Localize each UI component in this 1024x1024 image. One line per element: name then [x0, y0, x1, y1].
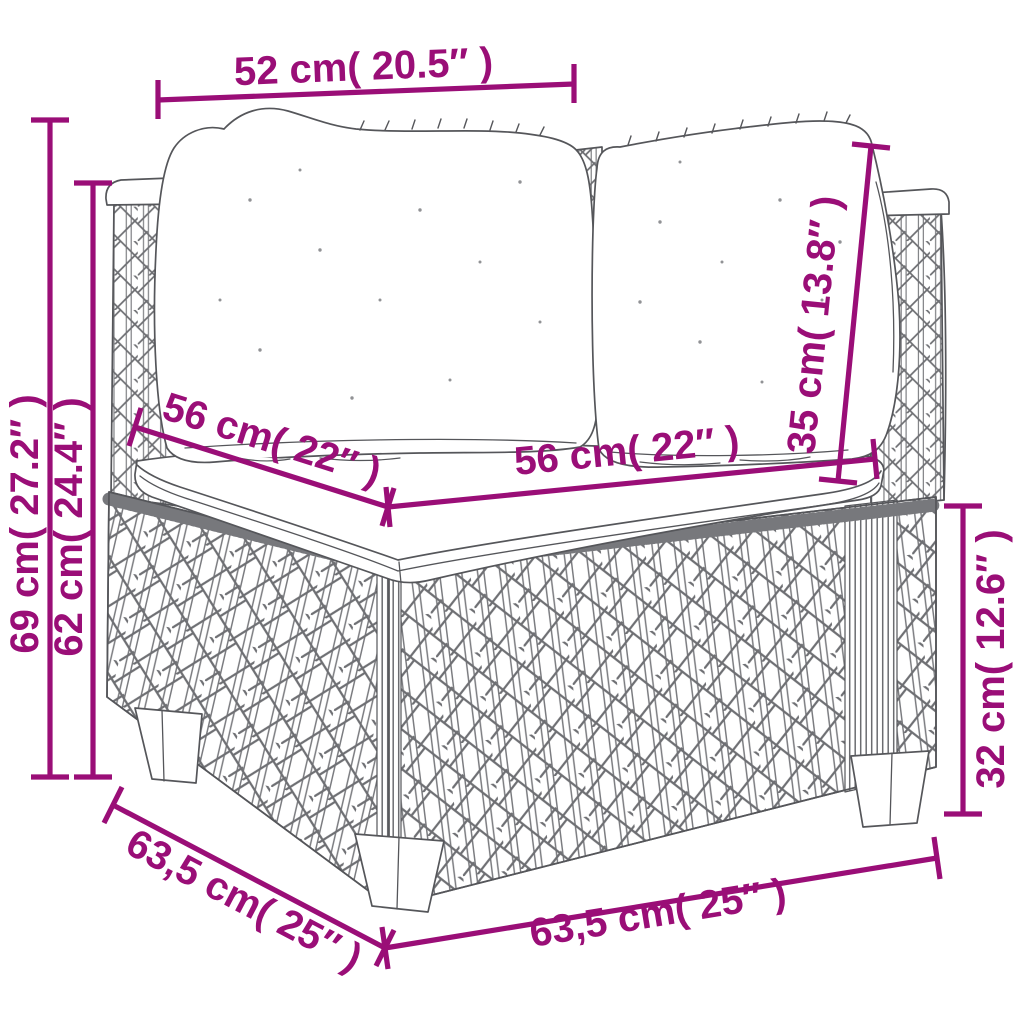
right-back-cushion: [592, 112, 900, 467]
base-braid-band: [845, 500, 897, 792]
front-foot: [355, 834, 444, 912]
dimension-arm-height-label: 62 cm( 24.4″ ): [47, 397, 91, 656]
dimension-overall-height-label: 69 cm( 27.2″ ): [3, 394, 47, 653]
left-foot: [135, 708, 202, 783]
dimension-top-width: 52 cm( 20.5″ ): [158, 40, 574, 119]
dimension-front-width-label: 63,5 cm( 25″ ): [526, 871, 789, 956]
dimension-base-height-label: 32 cm( 12.6″ ): [969, 529, 1013, 788]
dimension-diagram: 52 cm( 20.5″ ) 69 cm( 27.2″ ) 62 cm( 24.…: [0, 0, 1024, 1024]
sofa-dimension-drawing: 52 cm( 20.5″ ) 69 cm( 27.2″ ) 62 cm( 24.…: [0, 0, 1024, 1024]
dimension-arm-height: 62 cm( 24.4″ ): [47, 183, 112, 777]
dimension-base-height: 32 cm( 12.6″ ): [944, 506, 1013, 814]
